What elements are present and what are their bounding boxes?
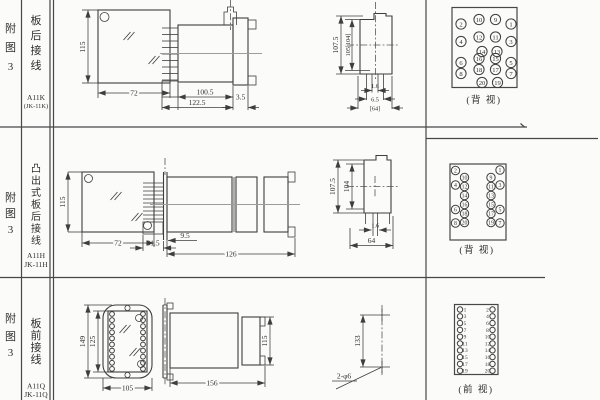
- dim-panel-thickness: 1.6: [371, 223, 379, 230]
- datasheet-drawing-sheet: 附 图 3 板 后 接 线 A11K (JK-11K) 115 72: [0, 0, 600, 400]
- pin-circle: [490, 348, 495, 353]
- pin-circle: [457, 314, 462, 319]
- pin-number: 11: [492, 34, 498, 41]
- pin-circle: [490, 354, 495, 359]
- pin-number: 18: [476, 67, 483, 74]
- pin-number: 5: [464, 321, 467, 327]
- dim-rear-height-outer: 107.5: [331, 36, 340, 53]
- dim-hole-span: 133: [353, 335, 362, 347]
- pin-circle: [490, 368, 495, 373]
- relay-outline: [98, 10, 170, 83]
- mounting-hole: [125, 372, 130, 377]
- hatch-mark: [130, 348, 141, 356]
- pin-number: 12: [485, 341, 491, 347]
- dim-total-length: 126: [225, 250, 237, 259]
- row2-rear-profile: 107.5 104 1.6 64: [328, 156, 398, 250]
- row2-header-labels: 附 图 3 凸 出 式 板 后 接 线 A11H JK-11H: [5, 163, 48, 269]
- wiring-label-char: 凸: [31, 163, 41, 175]
- dim-total-length: 122.5: [189, 98, 206, 107]
- fig-label-char: 附: [5, 190, 16, 204]
- wiring-label-char: 后: [31, 211, 41, 223]
- pin-number: 9: [494, 17, 498, 24]
- pin-number: 2: [454, 169, 457, 175]
- pin-number: 19: [488, 221, 494, 227]
- pin-circle: [490, 361, 495, 366]
- socket-tab: [260, 356, 265, 365]
- pin-number: 1: [509, 21, 512, 28]
- dim-height: 115: [78, 41, 87, 52]
- socket-tab: [260, 317, 265, 326]
- pin-grid-front-q: 1357911131517192468101214161820: [457, 307, 495, 375]
- pin-number: 19: [494, 80, 501, 87]
- hatch-mark: [124, 32, 135, 40]
- dim-width: 72: [130, 89, 138, 98]
- pin-circle: [457, 334, 462, 339]
- wiring-label-char: 线: [31, 352, 42, 366]
- dim-total-length: 156: [206, 379, 218, 388]
- socket-flange: [233, 18, 248, 85]
- dim-stud: 6.5: [371, 97, 379, 104]
- row3-pin-diagram: 1357911131517192468101214161820 (前 视): [455, 305, 499, 396]
- row1-side-view: 100.5 122.5 3.5: [160, 0, 262, 110]
- pin-number: 13: [494, 49, 501, 56]
- pin-number: 7: [464, 328, 467, 334]
- view-label: (背 视): [466, 94, 501, 106]
- dim-rear-height-outer: 107.5: [328, 178, 337, 195]
- wiring-label-char: 接: [31, 44, 42, 57]
- pin-number: 15: [488, 203, 494, 209]
- pin-number: 9: [490, 176, 493, 182]
- pin-circle: [110, 336, 115, 341]
- pin-number: 12: [462, 185, 468, 191]
- pin-number: 5: [509, 60, 513, 67]
- corner-screw: [85, 175, 93, 183]
- row1-rear-profile: 107.5 105[104] 1.6 6.5 [64]: [331, 2, 403, 113]
- pin-grid-rear-h: 2104121416618820193111315517719: [451, 166, 504, 227]
- pin-number: 3: [499, 183, 502, 189]
- pin-number: 18: [485, 362, 491, 368]
- fig-label-char: 图: [5, 207, 16, 220]
- pin-number: 4: [486, 314, 489, 320]
- pin-circle: [110, 318, 115, 323]
- pin-number: 14: [485, 348, 491, 354]
- pin-number: 10: [462, 176, 468, 182]
- pin-circle: [490, 341, 495, 346]
- pin-number: 18: [462, 212, 468, 218]
- row2-front-view: 115 72: [58, 172, 154, 248]
- pin-number: 4: [459, 39, 463, 46]
- wiring-label-char: 接: [31, 341, 42, 354]
- dim-socket-height: 115: [260, 335, 269, 346]
- pin-number: 16: [476, 56, 483, 63]
- flange-ear: [167, 303, 173, 309]
- pin-circle: [110, 367, 115, 372]
- pin-circle: [110, 342, 115, 347]
- fig-label-char: 图: [5, 330, 16, 343]
- hatch-mark: [111, 192, 122, 200]
- pin-number: 13: [462, 348, 468, 354]
- row2-side-view: 9.5 31.5 126: [130, 158, 300, 259]
- pin-number: 20: [479, 80, 486, 87]
- row3-side-view: 115 156: [163, 298, 274, 388]
- dim-width: 72: [114, 239, 122, 248]
- pin-number: 6: [459, 60, 463, 67]
- wiring-label-char: 板: [31, 13, 42, 27]
- dim-stud-span: 64: [368, 236, 376, 245]
- pin-circle: [457, 307, 462, 312]
- pin-circle: [110, 360, 115, 365]
- pin-circle: [110, 348, 115, 353]
- dim-body-length: 100.5: [197, 88, 214, 97]
- dim-offset: 9.5: [180, 231, 190, 240]
- model-code-alt: JK-11H: [24, 260, 48, 269]
- flange-tab: [288, 227, 295, 237]
- pin-circle: [141, 330, 146, 335]
- fig-label-char: 附: [5, 21, 16, 35]
- pin-number: 9: [464, 335, 467, 341]
- pin-number: 12: [476, 34, 483, 41]
- pin-number: 8: [459, 71, 463, 78]
- pin-number: 6: [486, 321, 489, 327]
- row3-front-view: 149 125 105: [78, 305, 152, 393]
- socket-outline: [450, 164, 506, 240]
- fig-label-char: 图: [5, 41, 16, 54]
- fig-label-char: 3: [8, 61, 14, 73]
- pin-circle: [110, 324, 115, 329]
- dim-panel-thickness: 1.6: [371, 83, 379, 90]
- pin-number: 10: [476, 17, 483, 24]
- pin-circle: [141, 342, 146, 347]
- fig-label-char: 3: [8, 224, 14, 236]
- dim-pin-length: 31.5: [146, 239, 159, 248]
- pin-number: 4: [454, 183, 457, 189]
- view-label: (背 视): [459, 244, 494, 256]
- pin-number: 3: [509, 39, 513, 46]
- flange-tab: [248, 20, 256, 29]
- pin-number: 13: [488, 194, 494, 200]
- row1-pin-diagram: 2109141211314136161558181772019 (背 视): [452, 8, 517, 107]
- wiring-label-char: 后: [31, 29, 42, 42]
- wiring-label-char: 前: [31, 328, 42, 342]
- dim-flange-height: 149: [78, 336, 87, 348]
- pin-number: 11: [488, 185, 494, 191]
- dim-height: 115: [58, 196, 67, 207]
- pin-number: 8: [486, 328, 489, 334]
- hatch-mark: [149, 56, 160, 64]
- pin-number: 17: [492, 67, 499, 74]
- pin-number: 5: [499, 208, 502, 214]
- pin-number: 17: [488, 212, 494, 218]
- pin-circle: [457, 320, 462, 325]
- pin-number: 1: [499, 168, 502, 174]
- hatch-mark: [132, 213, 143, 221]
- row1-front-view: 115 72: [78, 10, 170, 98]
- pin-number: 15: [492, 56, 499, 63]
- pin-number: 7: [499, 221, 502, 227]
- fig-label-char: 附: [5, 311, 16, 325]
- pin-number: 3: [464, 314, 467, 320]
- pin-number: 11: [462, 341, 467, 347]
- row1-header-labels: 附 图 3 板 后 接 线 A11K (JK-11K): [5, 13, 48, 110]
- row3-header-labels: 附 图 3 板 前 接 线 A11Q JK-11Q: [5, 311, 48, 399]
- fig-label-char: 3: [8, 347, 14, 359]
- model-code: A11H: [27, 251, 46, 260]
- wiring-label-char: 出: [31, 174, 41, 187]
- row3-drilling-template: 133 2-φ6: [332, 305, 390, 389]
- pin-number: 8: [454, 221, 457, 227]
- pin-circle: [110, 312, 115, 317]
- pin-number: 20: [485, 369, 491, 375]
- wiring-label-char: 接: [31, 222, 41, 235]
- pin-number: 17: [462, 362, 468, 368]
- dim-width: 105: [122, 384, 134, 393]
- pin-grid-rear-k: 2109141211314136161558181772019: [456, 14, 516, 87]
- pin-circle: [457, 327, 462, 332]
- dim-body-height: 125: [88, 336, 97, 348]
- model-code-alt: (JK-11K): [24, 103, 48, 110]
- terminal-screw-columns: [110, 312, 146, 372]
- pin-number: 14: [462, 194, 468, 200]
- pin-number: 2: [486, 307, 489, 313]
- flange-tab: [288, 172, 295, 182]
- pin-number: 7: [509, 71, 513, 78]
- wiring-label-char: 板: [31, 316, 42, 330]
- corner-screw: [100, 13, 109, 22]
- pin-circle: [490, 334, 495, 339]
- wiring-label-char: 板: [31, 198, 41, 211]
- pin-circle: [490, 307, 495, 312]
- pin-circle: [141, 336, 146, 341]
- pin-number: 2: [459, 21, 462, 28]
- dim-stud-span: [64]: [370, 106, 380, 113]
- pin-circle: [141, 354, 146, 359]
- row2-pin-diagram: 2104121416618820193111315517719 (背 视): [450, 164, 506, 256]
- pin-number: 15: [462, 355, 468, 361]
- pin-number: 16: [462, 203, 468, 209]
- wiring-label-char: 线: [31, 58, 42, 72]
- wiring-label-char: 线: [31, 234, 41, 247]
- model-code: A11K: [27, 93, 46, 102]
- pin-number: 20: [462, 221, 468, 227]
- view-label: (前 视): [458, 384, 493, 396]
- socket-part: [242, 317, 260, 365]
- pin-circle: [490, 320, 495, 325]
- pin-number: 1: [464, 307, 467, 313]
- wiring-label-char: 式: [31, 186, 41, 199]
- pin-circle: [110, 330, 115, 335]
- dim-flange-thickness: 3.5: [236, 93, 246, 102]
- model-code-alt: JK-11Q: [24, 390, 48, 399]
- pin-circle: [141, 348, 146, 353]
- pin-number: 6: [454, 208, 457, 214]
- hole-callout: 2-φ6: [337, 372, 352, 381]
- relay-body: [170, 313, 238, 368]
- mounting-hole: [125, 305, 130, 310]
- datasheet-page: 附 图 3 板 后 接 线 A11K (JK-11K) 115 72: [0, 0, 600, 400]
- pin-circle: [490, 327, 495, 332]
- pin-circle: [490, 314, 495, 319]
- flange-tab: [248, 76, 256, 85]
- pin-number: 19: [462, 369, 468, 375]
- pin-number: 10: [485, 335, 491, 341]
- pin-circle: [110, 354, 115, 359]
- hatch-mark: [120, 325, 131, 333]
- relay-body: [108, 311, 147, 372]
- corner-screw: [144, 222, 152, 230]
- pin-circle: [141, 324, 146, 329]
- pin-number: 16: [485, 355, 491, 361]
